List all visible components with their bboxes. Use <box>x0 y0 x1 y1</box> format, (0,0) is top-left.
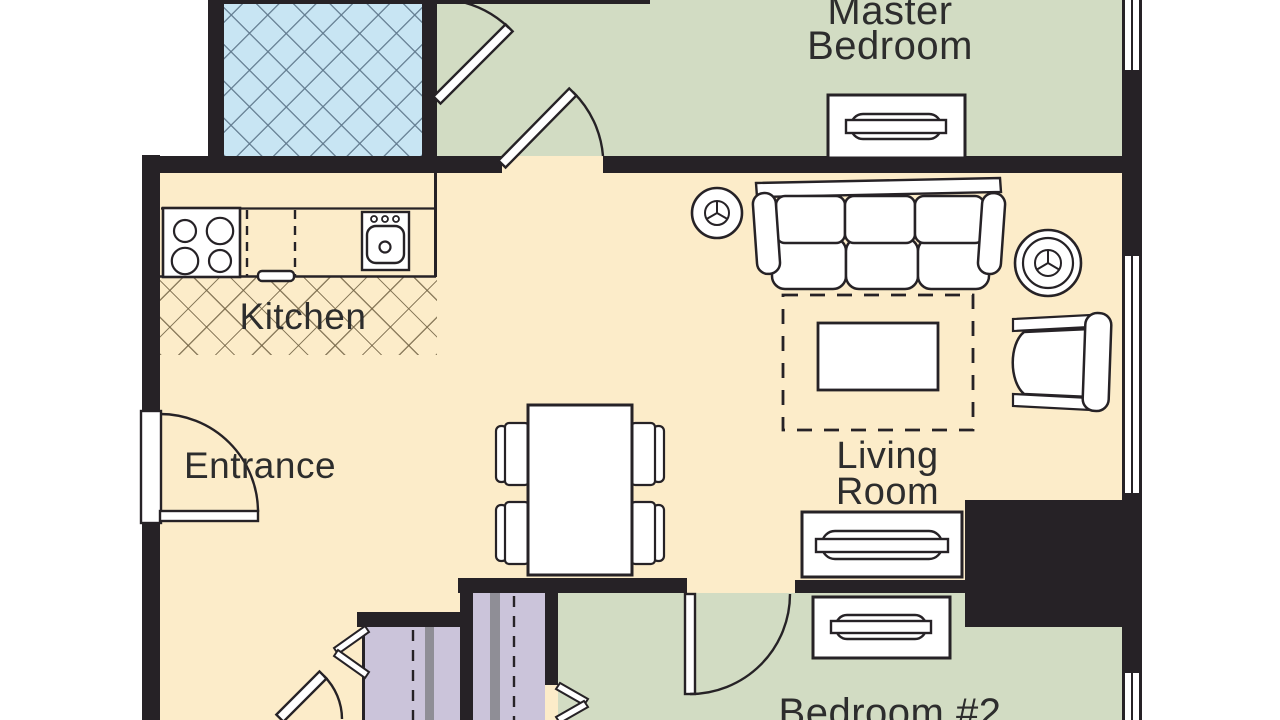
closet-bifold-right <box>556 683 588 720</box>
master-bedroom-door <box>498 88 603 167</box>
master-dresser <box>828 95 965 158</box>
armchair <box>1013 313 1112 412</box>
sofa <box>752 178 1006 289</box>
stove <box>163 208 240 277</box>
floor-plan: Master Bedroom Kitchen Entrance Living R… <box>0 0 1280 720</box>
dining-chair <box>496 423 529 485</box>
dining-chair <box>631 502 664 564</box>
kitchen-sink <box>362 212 409 270</box>
coffee-table <box>818 323 938 390</box>
dining-table <box>528 405 632 575</box>
bathroom-door <box>433 1 512 104</box>
bedroom2-label: Bedroom #2 <box>765 691 1015 720</box>
dishwasher <box>247 210 295 281</box>
plan-linework <box>0 0 1280 720</box>
side-table-large <box>1015 230 1081 296</box>
hall-door <box>276 671 342 720</box>
dining-chair <box>631 423 664 485</box>
entrance-label: Entrance <box>180 445 340 487</box>
closet-track-lines <box>413 596 514 720</box>
kitchen-label: Kitchen <box>228 296 378 338</box>
side-table-small <box>692 188 742 238</box>
bedroom2-dresser <box>813 597 950 658</box>
closet-bifold-left <box>334 626 369 678</box>
dining-chair <box>496 502 529 564</box>
dining-set <box>496 405 664 575</box>
living-room-label: Living Room <box>810 438 965 510</box>
console-table <box>756 178 1001 197</box>
master-bedroom-label: Master Bedroom <box>765 0 1015 64</box>
bedroom2-door <box>685 594 790 694</box>
living-room-dresser <box>802 512 962 577</box>
